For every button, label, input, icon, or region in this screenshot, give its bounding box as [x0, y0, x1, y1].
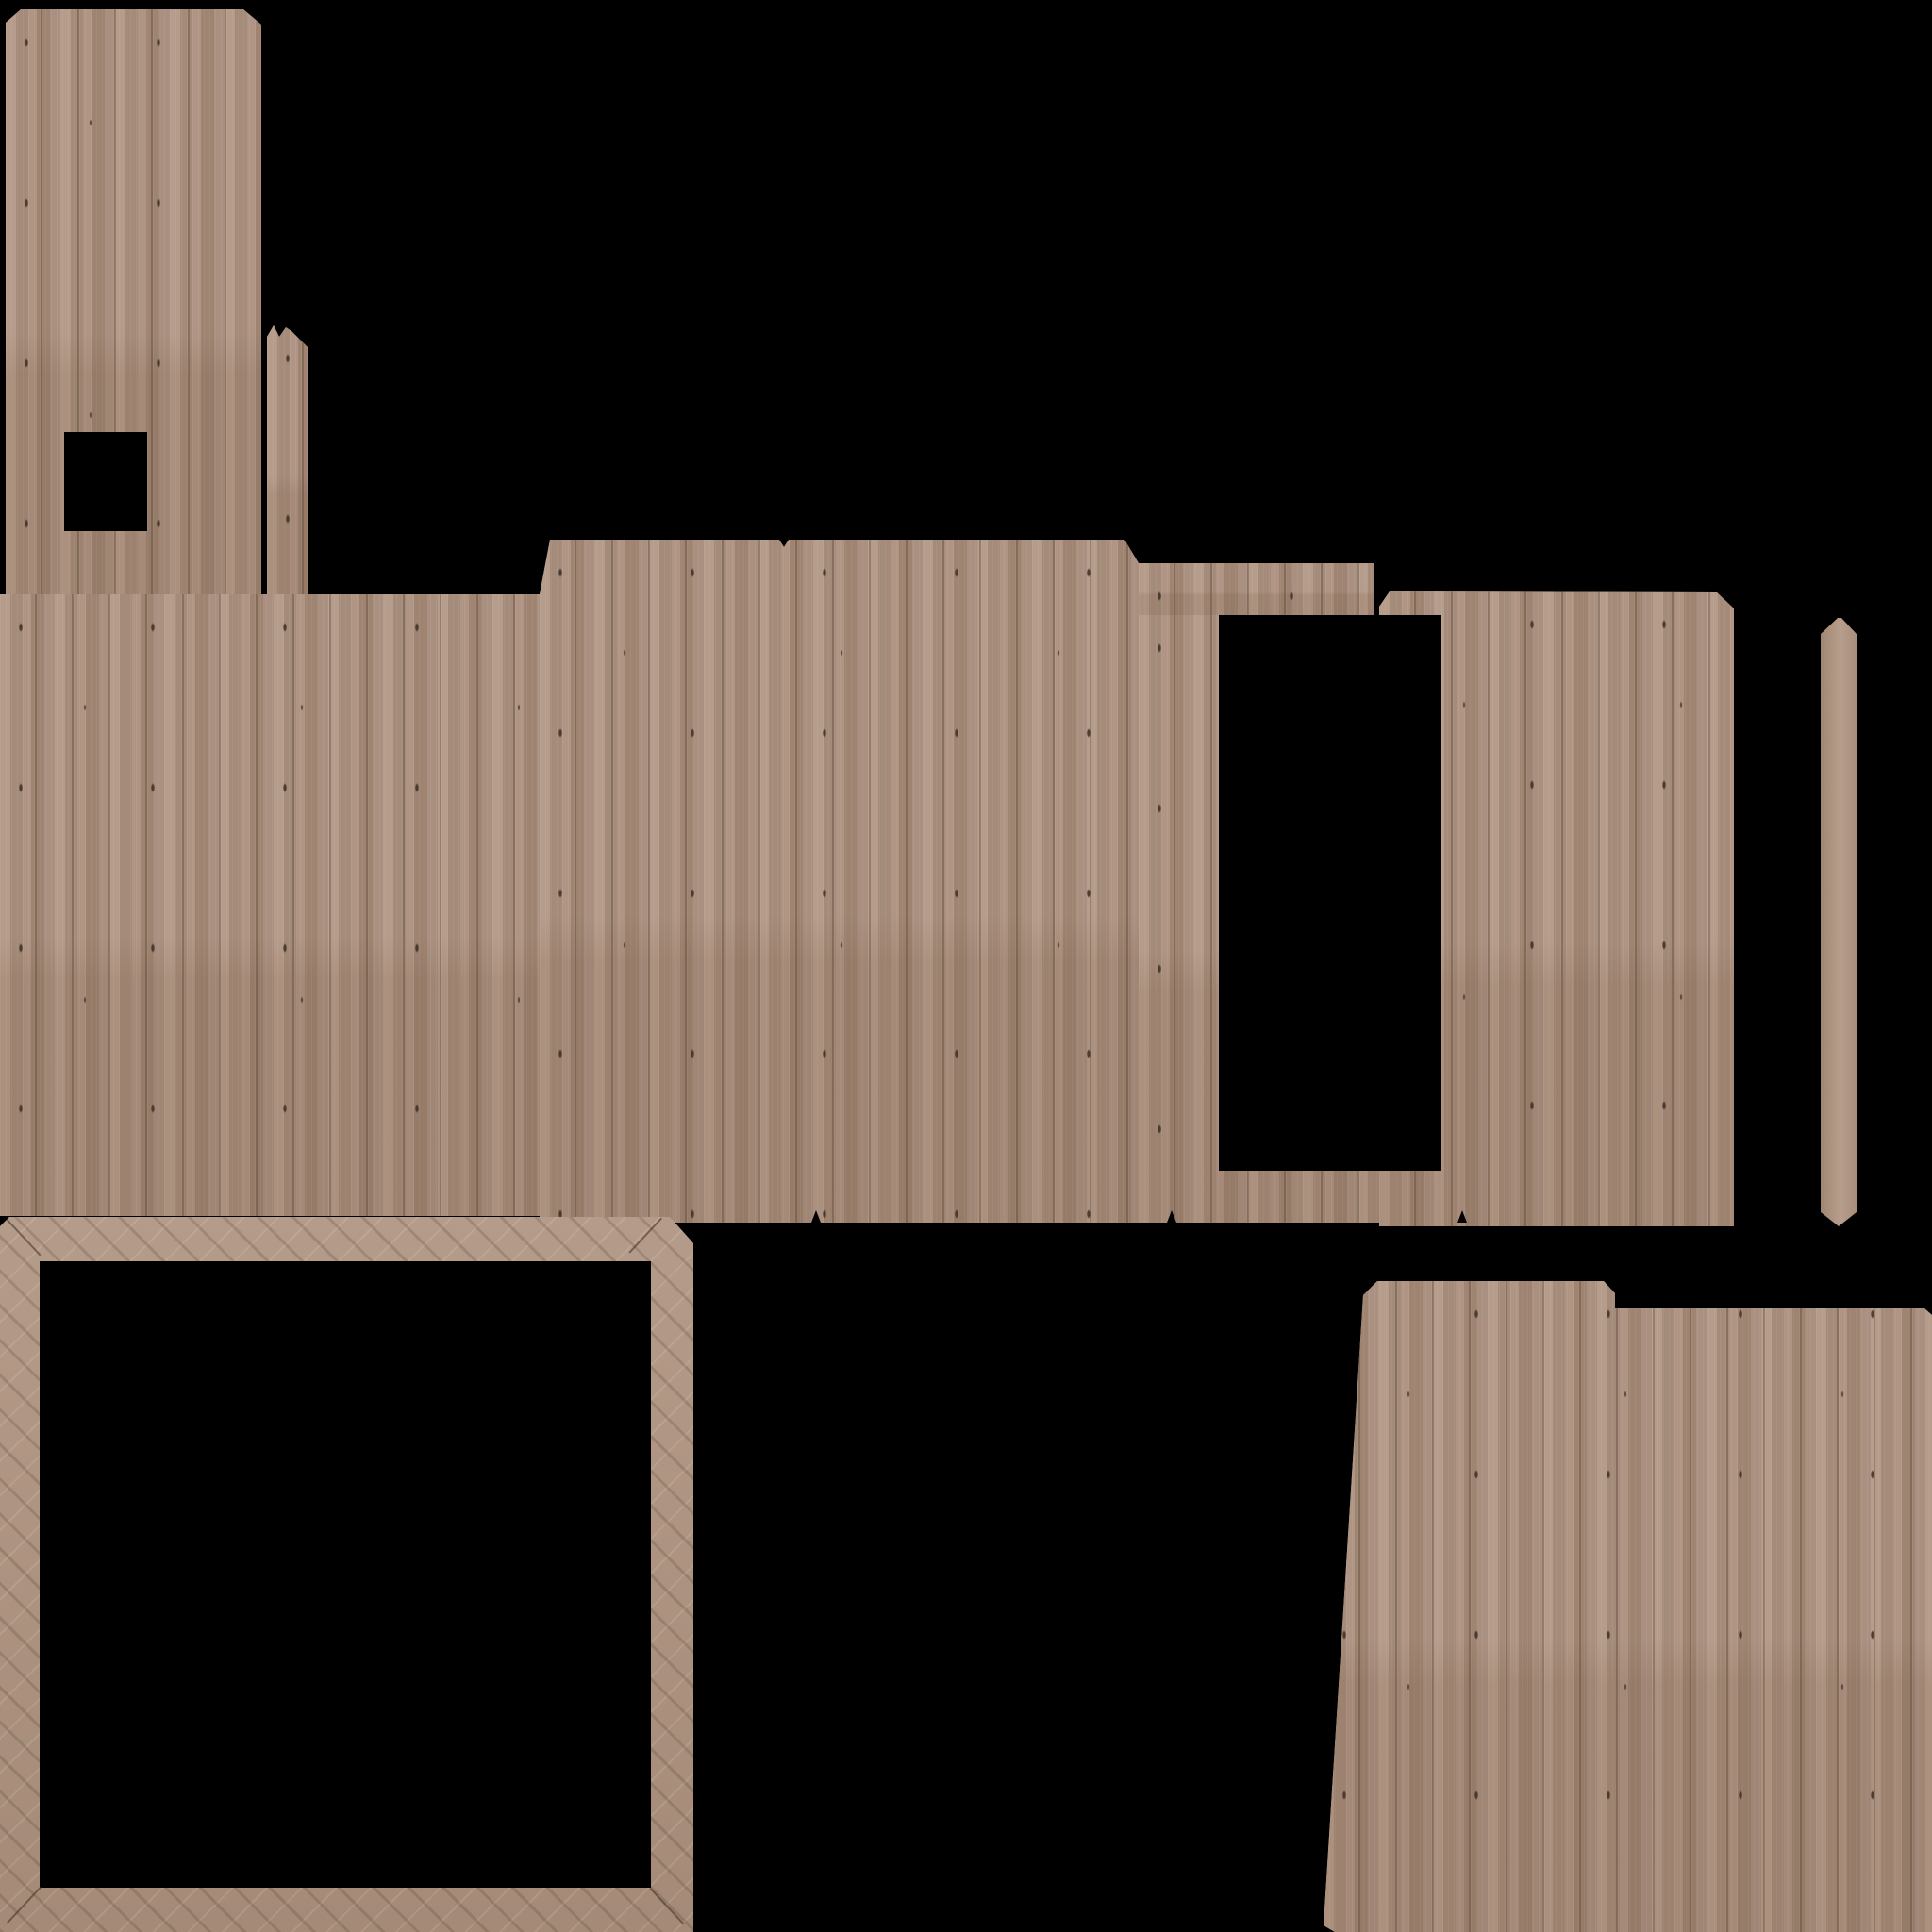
texture-atlas-canvas	[0, 0, 1932, 1932]
piece-post	[1821, 618, 1857, 1226]
cutout-top-left	[64, 432, 147, 531]
piece-band-left	[0, 594, 540, 1216]
piece-bridge-bar	[1139, 563, 1374, 615]
cutout-center	[1219, 615, 1441, 1171]
piece-bottom-right-planks	[1324, 1281, 1932, 1932]
piece-top-left-strip	[267, 325, 308, 598]
piece-band-mid	[540, 540, 1139, 1223]
cutout-bottom-frame	[40, 1261, 651, 1888]
